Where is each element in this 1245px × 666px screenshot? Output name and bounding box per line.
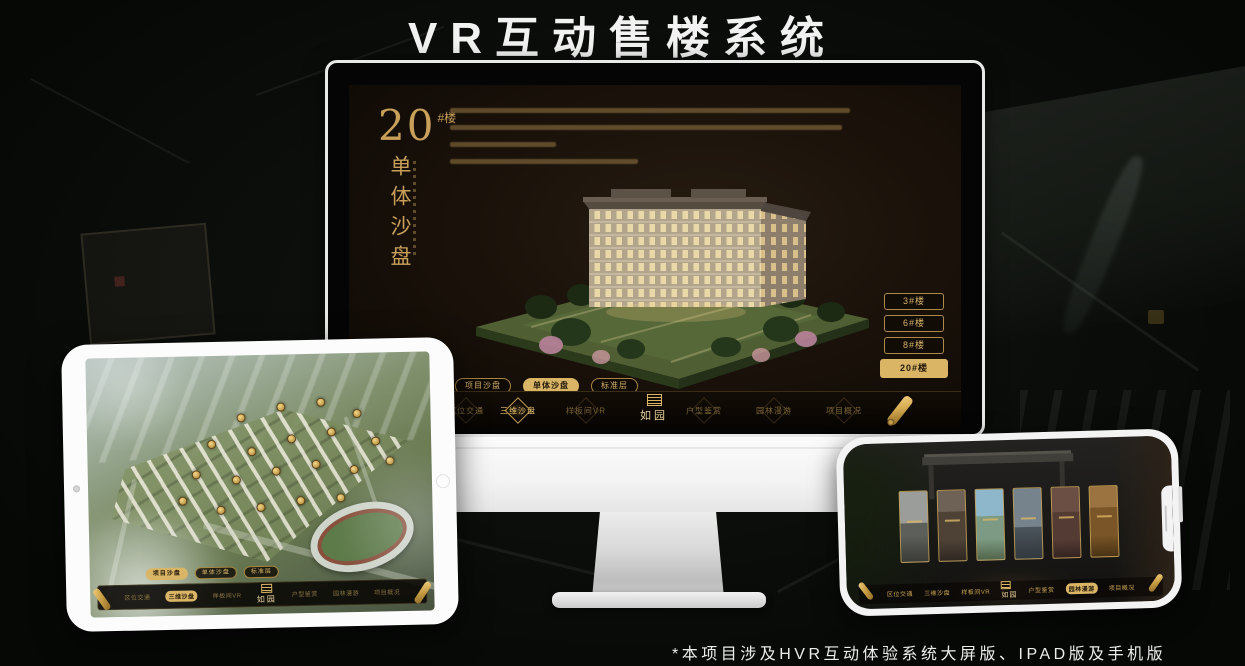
- scene-card-lounge[interactable]: [1089, 485, 1120, 558]
- nav-item-garden-tour[interactable]: 园林漫游: [1065, 583, 1097, 595]
- brand-logo-text: 如园: [640, 407, 668, 423]
- ipad-home-button[interactable]: [436, 474, 450, 488]
- description-line: [450, 125, 842, 130]
- tab-single-sandtable[interactable]: 单体沙盘: [195, 567, 237, 580]
- background-logo-mark: [1148, 310, 1164, 324]
- nav-item-garden-tour[interactable]: 园林漫游: [333, 588, 359, 598]
- nav-item-project-overview[interactable]: 项目概况: [817, 405, 871, 416]
- monitor-stand-neck: [592, 512, 724, 598]
- floor-button-group: 3#楼 6#楼 8#楼 20#楼: [880, 293, 948, 378]
- nav-item-traffic[interactable]: 区位交通: [124, 592, 150, 602]
- brand-logo-text: 如园: [1001, 590, 1017, 600]
- scene-card-courtyard[interactable]: [899, 490, 930, 563]
- scene-card-entry[interactable]: [1051, 486, 1082, 559]
- description-line: [450, 108, 850, 113]
- brand-logo[interactable]: 如园: [256, 584, 276, 605]
- nav-item-3d-sandtable[interactable]: 三维沙盘: [924, 588, 950, 598]
- nav-item-showroom-vr[interactable]: 样板间VR: [961, 587, 990, 597]
- scene-card-interior[interactable]: [937, 489, 968, 562]
- building-headline: 20#楼: [378, 101, 456, 150]
- ipad-view-tabs: 项目沙盘 单体沙盘 标准层: [146, 566, 279, 581]
- phone-mockup: 区位交通 三维沙盘 样板间VR 如园 户型鉴赏 园林漫游 项目概况: [836, 428, 1183, 616]
- background-road-line: [1001, 231, 1199, 371]
- nav-item-project-overview[interactable]: 项目概况: [1109, 583, 1135, 593]
- floor-button-6[interactable]: 6#楼: [884, 315, 944, 332]
- scroll-handle-icon[interactable]: [886, 394, 914, 426]
- floor-button-3[interactable]: 3#楼: [884, 293, 944, 310]
- seal-icon: [1001, 581, 1011, 589]
- building-3d-render[interactable]: [461, 157, 881, 397]
- seal-icon: [261, 584, 272, 593]
- nav-item-unit-plans[interactable]: 户型鉴赏: [677, 405, 731, 416]
- nav-item-3d-sandtable[interactable]: 三维沙盘: [491, 405, 545, 416]
- phone-notch: [1161, 485, 1174, 551]
- poster-footnote: *本项目涉及HVR互动体验系统大屏版、IPAD版及手机版: [672, 640, 1166, 664]
- nav-item-project-overview[interactable]: 项目概况: [374, 587, 400, 597]
- brand-logo-text: 如园: [257, 594, 277, 605]
- tab-project-sandtable[interactable]: 项目沙盘: [146, 568, 188, 581]
- headline-vertical-en-decor: [413, 161, 416, 257]
- poster-title: VR互动售楼系统: [0, 2, 1245, 66]
- floor-button-20[interactable]: 20#楼: [880, 359, 948, 378]
- ipad-screen: 项目沙盘 单体沙盘 标准层 区位交通 三维沙盘 样板间VR 如园 户型鉴赏 园林…: [85, 351, 434, 617]
- building-number: 20: [378, 101, 435, 150]
- background-photo: [942, 64, 1245, 346]
- phone-screen: 区位交通 三维沙盘 样板间VR 如园 户型鉴赏 园林漫游 项目概况: [843, 435, 1175, 609]
- monitor-stand-base: [552, 592, 766, 608]
- ipad-mockup: 项目沙盘 单体沙盘 标准层 区位交通 三维沙盘 样板间VR 如园 户型鉴赏 园林…: [61, 337, 459, 632]
- headline-vertical: 单体沙盘: [385, 155, 415, 275]
- brand-logo[interactable]: 如园: [632, 394, 676, 423]
- tab-standard-floor[interactable]: 标准层: [244, 566, 279, 579]
- phone-side-button[interactable]: [1178, 486, 1183, 522]
- poster: VR互动售楼系统 20#楼 单体沙盘: [0, 0, 1245, 666]
- background-road-line: [30, 78, 190, 164]
- seal-icon: [647, 394, 662, 406]
- nav-item-unit-plans[interactable]: 户型鉴赏: [292, 589, 318, 599]
- background-river: [1055, 152, 1150, 338]
- nav-item-traffic[interactable]: 区位交通: [887, 589, 913, 599]
- brand-logo[interactable]: 如园: [1001, 581, 1018, 600]
- gate-beam: [922, 453, 1073, 465]
- scene-gallery: [899, 485, 1120, 563]
- scene-card-exterior[interactable]: [975, 488, 1006, 561]
- nav-item-showroom-vr[interactable]: 样板间VR: [559, 405, 613, 416]
- background-plaque: [80, 223, 215, 346]
- nav-item-garden-tour[interactable]: 园林漫游: [747, 405, 801, 416]
- scene-card-facade[interactable]: [1013, 487, 1044, 560]
- nav-item-3d-sandtable[interactable]: 三维沙盘: [165, 590, 197, 602]
- description-line: [450, 142, 556, 147]
- nav-item-showroom-vr[interactable]: 样板间VR: [213, 590, 242, 600]
- nav-item-unit-plans[interactable]: 户型鉴赏: [1028, 585, 1054, 595]
- floor-button-8[interactable]: 8#楼: [884, 337, 944, 354]
- ipad-camera-icon: [73, 485, 80, 492]
